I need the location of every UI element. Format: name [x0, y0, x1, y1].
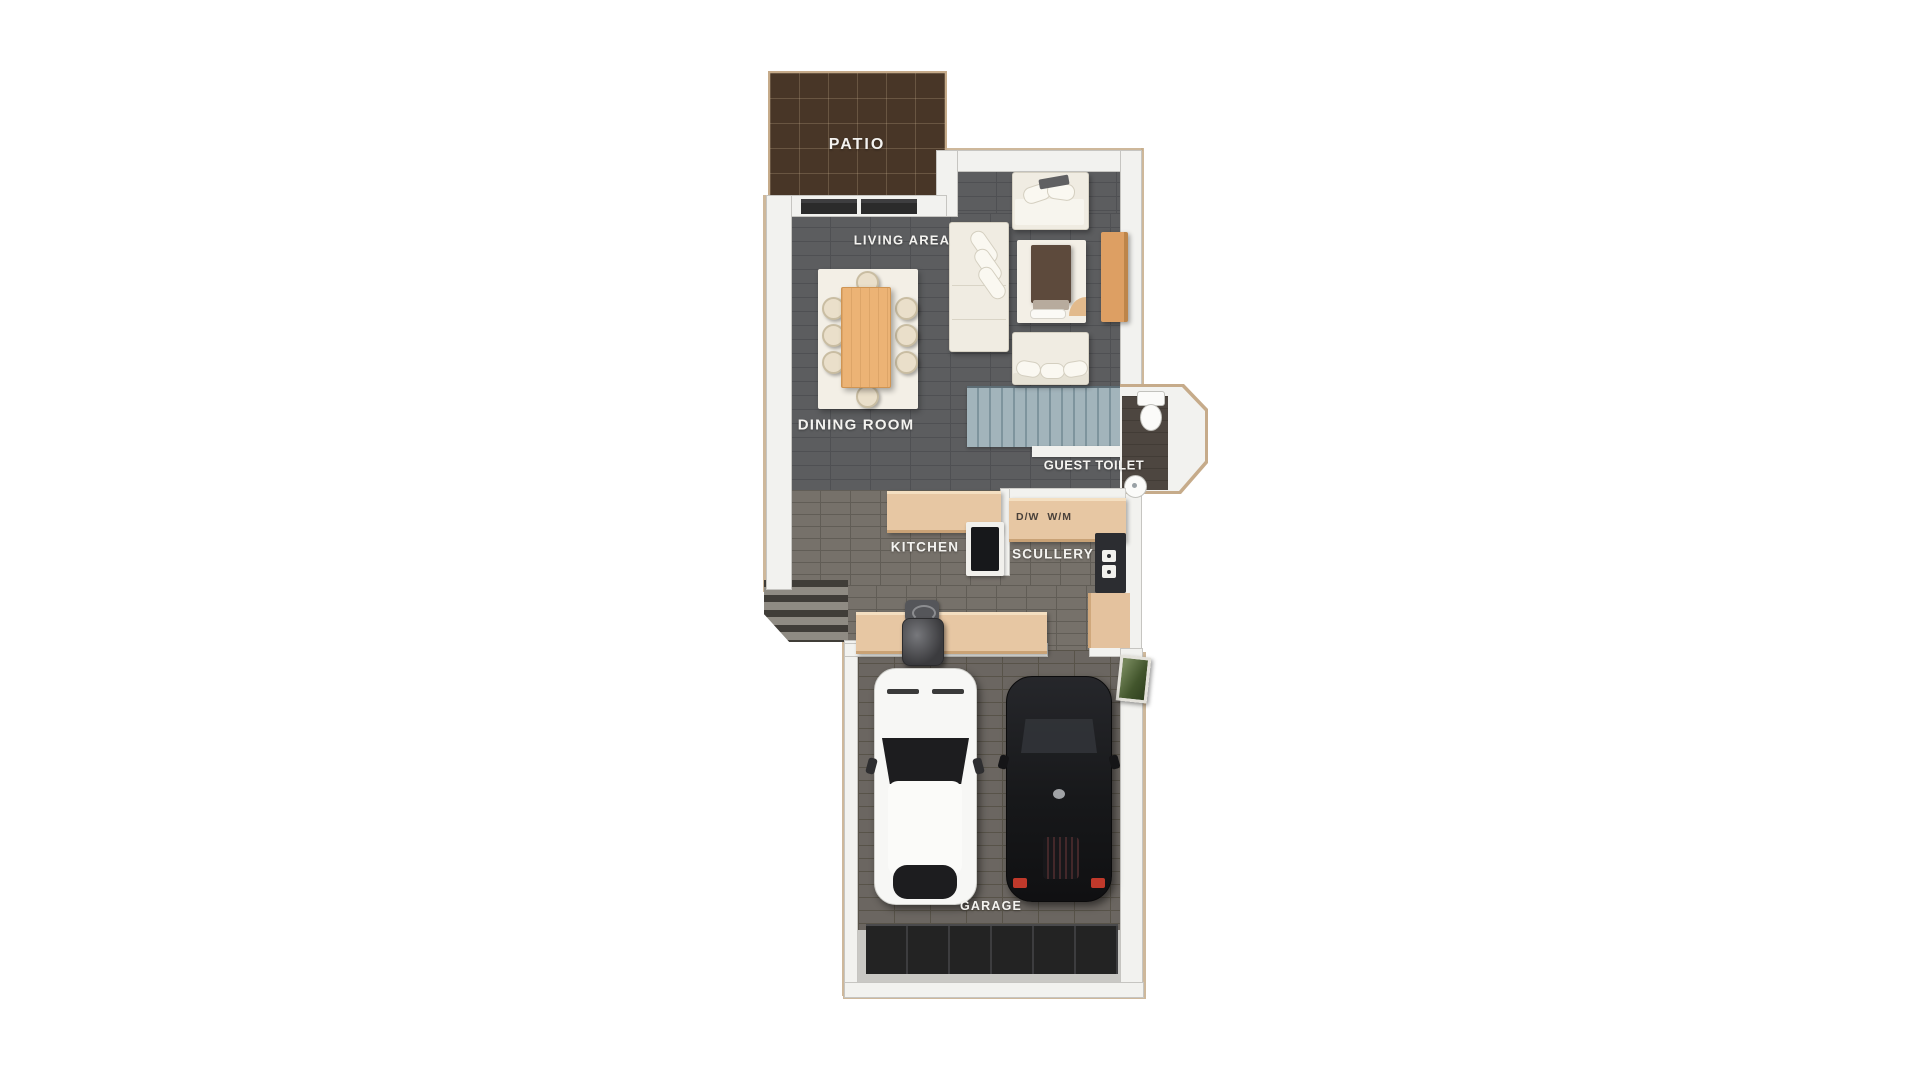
sliding-door-right-panel: [861, 199, 917, 214]
kitchen-label: KITCHEN: [891, 540, 959, 555]
three-seater-sofa: [949, 222, 1009, 352]
car-roof: [888, 781, 962, 875]
appliances-label: D/W W/M: [1016, 511, 1072, 523]
dining-room-label: DINING ROOM: [798, 417, 915, 434]
scullery-cabinet: [1088, 593, 1130, 648]
garage-label: GARAGE: [960, 899, 1022, 913]
roof-reflection: [1053, 789, 1065, 799]
taillight: [1091, 878, 1105, 888]
pillow: [1040, 363, 1065, 379]
guest-toilet-label: GUEST TOILET: [1044, 458, 1144, 473]
stair-landing: [1032, 446, 1121, 457]
dining-chair: [895, 324, 918, 347]
windshield: [1021, 719, 1097, 753]
loveseat-sofa-top: [1012, 172, 1089, 230]
notice-board-icon: [1116, 655, 1152, 704]
geyser-body: [902, 618, 944, 666]
cooktop-icon: [966, 522, 1004, 576]
dining-chair: [856, 385, 879, 408]
dining-chair: [895, 297, 918, 320]
wall-garage-left: [844, 640, 858, 992]
toilet-bowl-icon: [1140, 404, 1162, 431]
sliding-door-left-panel: [801, 199, 857, 214]
outline-garage-right: [1143, 652, 1146, 996]
garage-counter: [856, 612, 1047, 654]
black-car-icon: [1006, 676, 1112, 902]
engine-cover-grille: [1043, 837, 1079, 879]
wall-left: [766, 195, 792, 590]
living-area-label: LIVING AREA: [854, 233, 951, 248]
scullery-label: SCULLERY: [1012, 547, 1094, 562]
garage-door: [866, 924, 1118, 974]
guest-toilet-bumpout: [1120, 382, 1210, 496]
taillight: [1013, 878, 1027, 888]
dining-table-icon: [841, 287, 891, 388]
windshield: [882, 738, 969, 784]
headlight: [932, 689, 964, 694]
dining-chair: [895, 351, 918, 374]
sideboard-icon: [1101, 232, 1128, 322]
oven-tower-icon: [1095, 533, 1126, 593]
armchair-feet: [1030, 309, 1066, 319]
loveseat-sofa-bottom: [1012, 332, 1089, 385]
white-car-icon: [874, 668, 977, 905]
armchair-icon: [1031, 245, 1071, 303]
headlight: [887, 689, 919, 694]
side-mirror: [997, 754, 1009, 770]
floor-plan: PATIO LIVING AREA DINING ROOM GUEST TOIL…: [0, 0, 1920, 1080]
pillow: [975, 264, 1009, 303]
rear-window: [893, 865, 957, 899]
wall-garage-bottom: [844, 982, 1144, 998]
washbasin-icon: [1124, 475, 1147, 498]
wall-top: [936, 150, 1142, 172]
staircase: [967, 386, 1122, 447]
patio-label: PATIO: [829, 136, 886, 154]
